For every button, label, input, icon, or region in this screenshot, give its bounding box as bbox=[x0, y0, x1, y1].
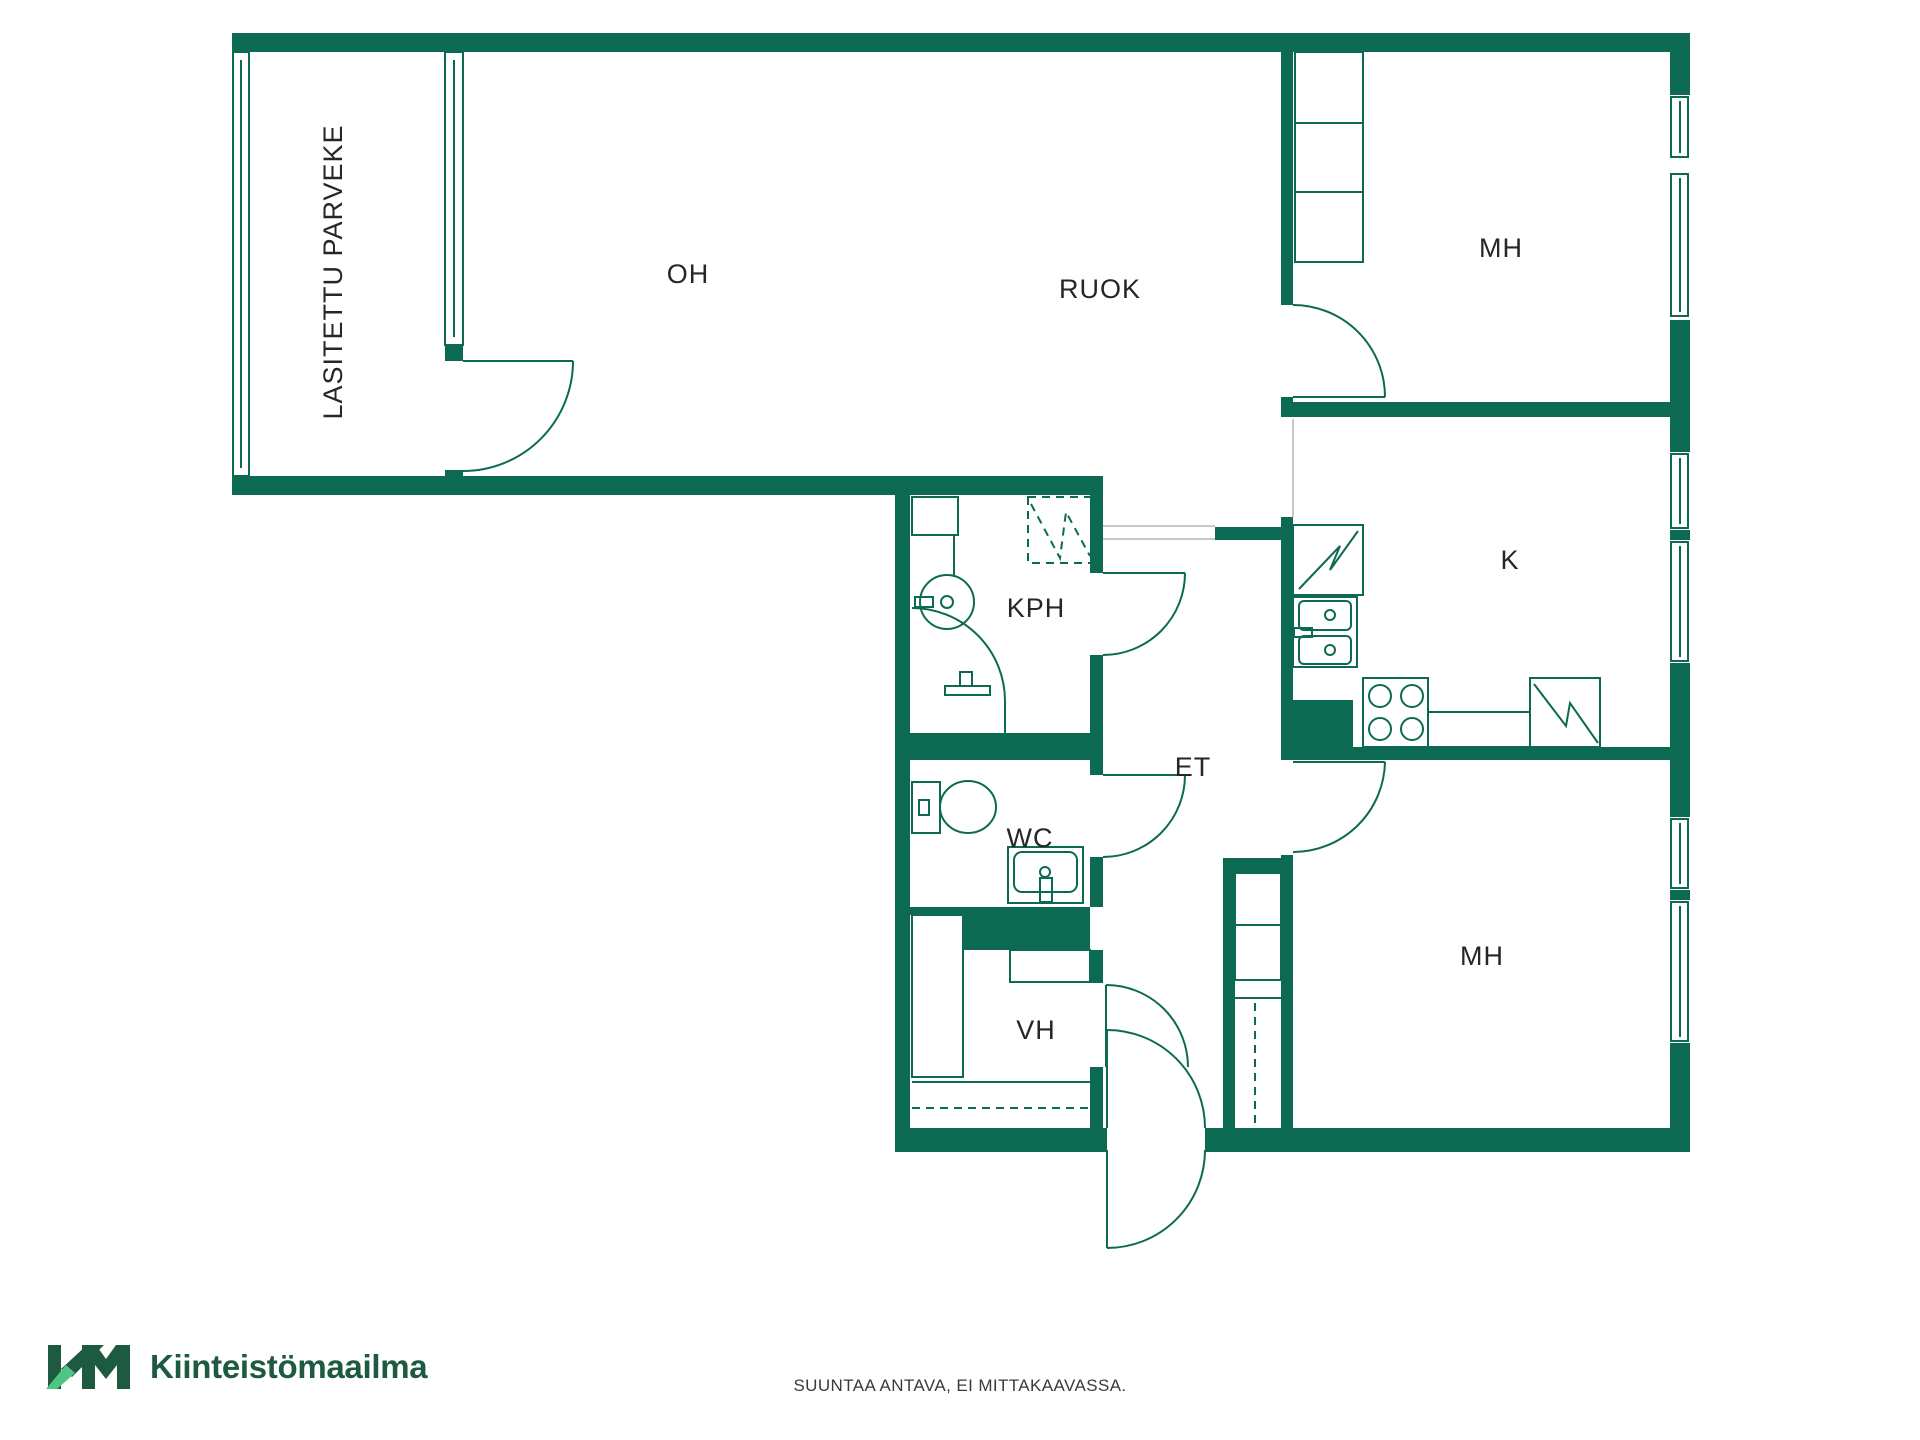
shower-screen-icon bbox=[912, 608, 1005, 701]
wall-balcony-mullion bbox=[445, 345, 463, 361]
window-mullion bbox=[1670, 530, 1690, 540]
wall-wc-right-lower bbox=[1090, 857, 1103, 907]
wall-mh-bottom-left bbox=[1281, 855, 1293, 1128]
room-label-mh-top: MH bbox=[1479, 233, 1523, 263]
kitchen-sink-icon bbox=[1293, 597, 1357, 667]
door-balcony bbox=[463, 361, 573, 471]
stove-burner-icon bbox=[1369, 718, 1391, 740]
washing-machine-icon bbox=[941, 596, 953, 608]
window-mullion bbox=[1670, 890, 1690, 900]
wall-kitchen-mh bbox=[1353, 747, 1670, 760]
door-entry-outer bbox=[1107, 1150, 1205, 1248]
room-label-et: ET bbox=[1175, 752, 1212, 782]
wardrobe-icon bbox=[1295, 52, 1363, 123]
fridge-icon bbox=[1299, 531, 1358, 589]
wall-mh-top-kitchen bbox=[1281, 402, 1690, 417]
wardrobe-icon bbox=[1295, 192, 1363, 262]
wall-oh-south bbox=[232, 476, 1103, 495]
shower-faucet-icon bbox=[945, 686, 990, 695]
sink-icon bbox=[1008, 847, 1083, 903]
dishwasher-icon bbox=[1530, 678, 1600, 747]
counter-icon bbox=[1428, 712, 1530, 747]
disclaimer-text: SUUNTAA ANTAVA, EI MITTAKAAVASSA. bbox=[0, 1376, 1920, 1396]
door-vh bbox=[1106, 985, 1188, 1067]
door-wc bbox=[1103, 775, 1185, 857]
room-label-vh: VH bbox=[1016, 1015, 1056, 1045]
floorplan-page: OHRUOKMHKKPHETWCVHMHLASITETTU PARVEKE Ki… bbox=[0, 0, 1920, 1440]
wall-wc-vh bbox=[963, 907, 1090, 950]
stove-burner-icon bbox=[1369, 685, 1391, 707]
wall-closet-left bbox=[1223, 858, 1235, 1128]
wall-kph-wc bbox=[910, 733, 1103, 760]
stove-burner-icon bbox=[1401, 685, 1423, 707]
stove-burner-icon bbox=[1401, 718, 1423, 740]
bathroom-cabinet-icon bbox=[912, 497, 958, 535]
washing-machine-icon bbox=[920, 575, 974, 629]
shower-faucet-icon bbox=[960, 672, 972, 686]
dishwasher-icon bbox=[1534, 684, 1598, 743]
room-label-wc: WC bbox=[1007, 823, 1054, 853]
wall-bottom-left bbox=[895, 1128, 1107, 1152]
wall-kitchen-left bbox=[1281, 517, 1293, 700]
wall-mid-left bbox=[895, 495, 910, 1128]
vh-closet-icon bbox=[912, 915, 963, 1077]
toilet-icon bbox=[940, 781, 996, 833]
toilet-icon bbox=[919, 800, 929, 815]
room-label-mh-bottom: MH bbox=[1460, 941, 1504, 971]
wall-vh-right-lower bbox=[1090, 1067, 1103, 1128]
sink-icon bbox=[1014, 852, 1077, 892]
wall-kph-right-lower bbox=[1090, 655, 1103, 733]
hall-closet-icon bbox=[1235, 925, 1281, 980]
room-label-oh: OH bbox=[667, 259, 710, 289]
wall-mh-top-left bbox=[1281, 33, 1293, 305]
wall-vh-right-upper bbox=[1090, 950, 1103, 983]
sink-faucet-icon bbox=[1040, 867, 1050, 877]
wall-top bbox=[232, 33, 1690, 52]
room-label-parveke: LASITETTU PARVEKE bbox=[318, 124, 348, 419]
washing-machine-detail bbox=[915, 597, 933, 607]
vh-shelf-icon bbox=[1010, 950, 1090, 982]
kitchen-sink-icon bbox=[1325, 610, 1335, 620]
hall-closet-icon bbox=[1235, 873, 1281, 925]
wall-wc-right-upper bbox=[1090, 760, 1103, 775]
room-label-ruok: RUOK bbox=[1059, 274, 1141, 304]
kitchen-sink-icon bbox=[1325, 645, 1335, 655]
door-entry-inner bbox=[1107, 1030, 1205, 1128]
door-bedroom-bottom bbox=[1293, 762, 1385, 852]
shower-area-dashed bbox=[1031, 504, 1090, 558]
toilet-icon bbox=[912, 782, 940, 833]
room-label-k: K bbox=[1500, 545, 1519, 575]
floor-plan: OHRUOKMHKKPHETWCVHMHLASITETTU PARVEKE bbox=[0, 0, 1920, 1440]
wall-bottom-right bbox=[1205, 1128, 1690, 1152]
wall-kitchen-chunk bbox=[1281, 700, 1353, 760]
wall-balcony-stub bbox=[445, 470, 463, 478]
room-label-kph: KPH bbox=[1007, 593, 1066, 623]
shower-area-dashed bbox=[1028, 497, 1092, 563]
sink-faucet-icon bbox=[1040, 878, 1052, 902]
door-bathroom bbox=[1103, 573, 1185, 655]
wall-wc-vh-sliver bbox=[910, 907, 963, 915]
wardrobe-icon bbox=[1295, 123, 1363, 192]
door-bedroom-top bbox=[1293, 305, 1385, 397]
